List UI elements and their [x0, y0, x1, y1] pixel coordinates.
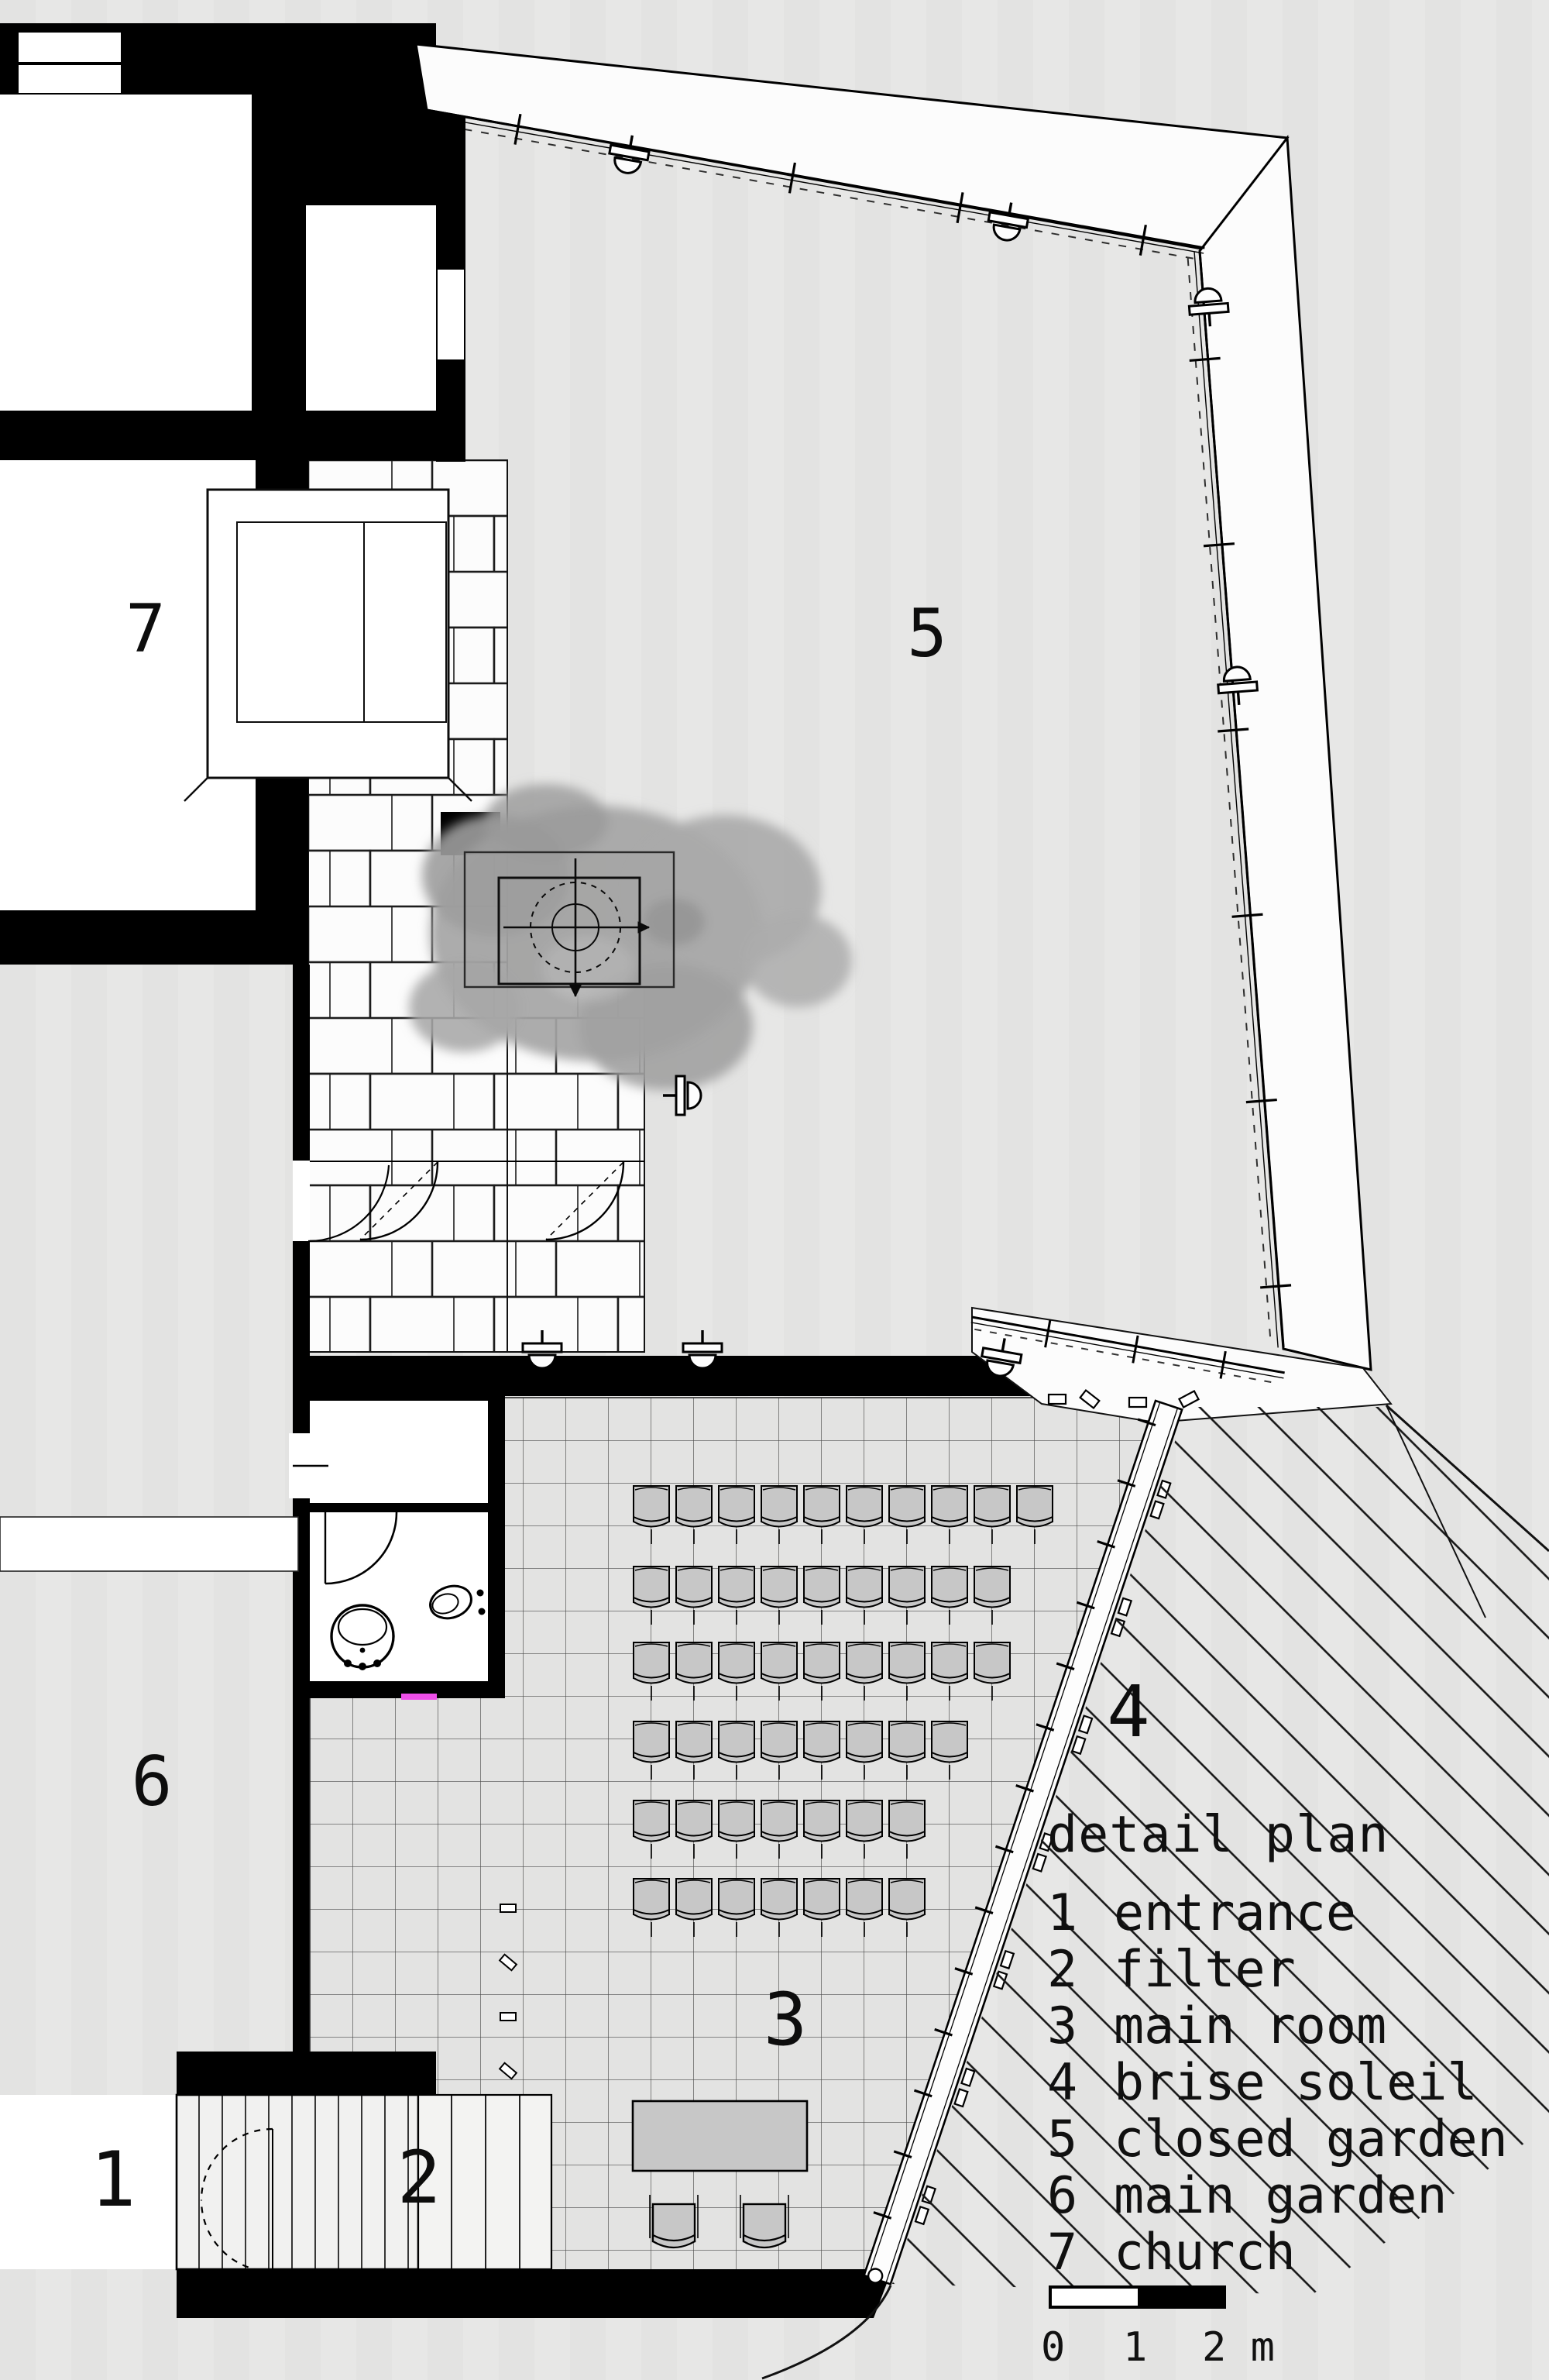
- toilet-block: [289, 1389, 505, 1700]
- legend-name: filter: [1114, 1945, 1296, 1995]
- garden-door-gap: [293, 1161, 310, 1241]
- plan-label-filter: 2: [397, 2142, 441, 2215]
- legend-row: 1 entrance: [1047, 1882, 1508, 1938]
- altar-table: [633, 2101, 807, 2171]
- entrance-vestibule: [177, 2095, 418, 2269]
- legend-name: main room: [1114, 2001, 1386, 2052]
- legend-row: 2 filter: [1047, 1938, 1508, 1995]
- church-side-room: [0, 95, 252, 411]
- legend-num: 3: [1047, 2001, 1114, 2052]
- threshold-accent: [401, 1694, 437, 1700]
- south-wall: [177, 2269, 892, 2318]
- plan-label-brise-soleil: 4: [1107, 1677, 1149, 1748]
- altar-niche: [184, 490, 472, 801]
- legend-num: 6: [1047, 2171, 1114, 2221]
- basin-icon: [331, 1605, 393, 1667]
- east-wall-window: [438, 270, 464, 359]
- legend-name: brise soleil: [1114, 2058, 1478, 2108]
- legend-name: main garden: [1114, 2171, 1447, 2221]
- church-chapel-room: [306, 205, 436, 411]
- floor-plan-page: 7 5 6 1 2 3 4 detail plan 1 entrance 2 f…: [0, 0, 1549, 2380]
- legend-row: 4 brise soleil: [1047, 2052, 1508, 2108]
- legend-row: 5 closed garden: [1047, 2108, 1508, 2165]
- legend-row: 6 main garden: [1047, 2165, 1508, 2221]
- legend-title: detail plan: [1047, 1810, 1508, 1860]
- legend-num: 4: [1047, 2058, 1114, 2108]
- legend-row: 3 main room: [1047, 1995, 1508, 2052]
- legend-name: church: [1114, 2227, 1296, 2278]
- legend-num: 2: [1047, 1945, 1114, 1995]
- scale-tick-0: 0: [1041, 2324, 1065, 2371]
- plan-label-church: 7: [125, 596, 166, 662]
- legend-num: 1: [1047, 1888, 1114, 1938]
- legend-name: entrance: [1114, 1888, 1356, 1938]
- legend-num: 7: [1047, 2227, 1114, 2278]
- scale-bar: [1049, 2285, 1226, 2309]
- legend: detail plan 1 entrance 2 filter 3 main r…: [1047, 1810, 1508, 2278]
- legend-row: 7 church: [1047, 2221, 1508, 2278]
- entrance-corridor: [0, 2095, 177, 2269]
- plan-label-closed-garden: 5: [907, 600, 947, 667]
- scale-tick-2: 2 m: [1202, 2324, 1275, 2371]
- scale-tick-1: 1: [1123, 2324, 1147, 2371]
- plan-label-main-room: 3: [764, 1984, 808, 2057]
- garden-path: [0, 1517, 298, 1571]
- wall-stub-upper: [177, 2052, 436, 2095]
- legend-name: closed garden: [1114, 2114, 1508, 2165]
- legend-num: 5: [1047, 2114, 1114, 2165]
- tree-planter: [465, 852, 674, 987]
- anteroom: [310, 1401, 488, 1503]
- plan-label-main-garden: 6: [132, 1748, 173, 1816]
- plan-label-entrance: 1: [90, 2142, 136, 2218]
